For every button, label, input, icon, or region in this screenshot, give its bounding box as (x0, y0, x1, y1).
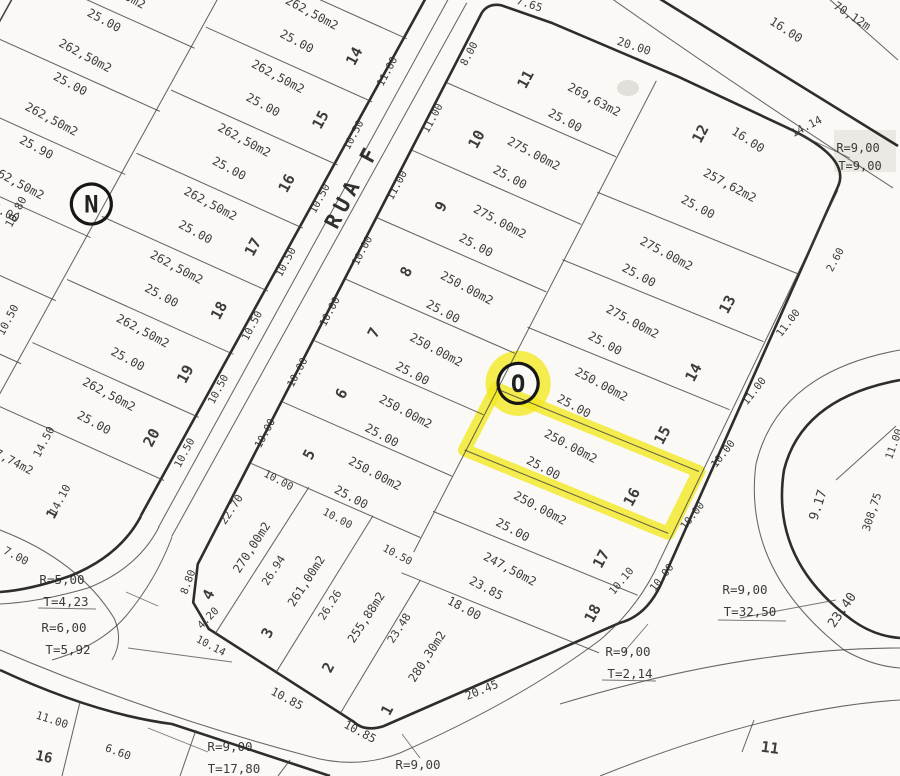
n15-d25: 25.00 (244, 90, 282, 119)
n14-d25: 25.00 (278, 27, 316, 56)
nb3-d25: 25.90 (17, 133, 55, 162)
n15-num: 15 (308, 108, 332, 132)
street-gutter-line (172, 0, 467, 541)
o11-d25: 25.00 (546, 106, 584, 135)
curve-t592: T=5,92 (45, 642, 90, 657)
o5-num: 5 (299, 446, 319, 462)
o11-num: 11 (513, 67, 537, 91)
plat-svg: 11269,63m225.008.007.6520.00275.00m225.0… (0, 0, 900, 776)
o1-num: 1 (377, 702, 397, 718)
curve-r9-s: R=9,00 (395, 757, 440, 772)
o6-num: 6 (331, 385, 351, 401)
e-dim-917: 9.17 (807, 488, 831, 522)
bl-dim-660: 6.60 (103, 741, 132, 762)
curve-r6: R=6,00 (41, 620, 86, 635)
nw-dim-1050: 10.50 (0, 302, 22, 337)
o9-num: 9 (431, 198, 451, 214)
lot-line (62, 702, 80, 776)
n19-d25: 25.00 (109, 344, 147, 373)
o7-num: 7 (364, 324, 384, 340)
o14-num: 14 (681, 360, 705, 384)
o4-top: 10.00 (262, 468, 296, 493)
o2-num: 2 (318, 659, 338, 675)
o14-area: 275.00m2 (604, 302, 662, 341)
n14-num: 14 (342, 44, 366, 68)
o12-area: 257,62m2 (701, 166, 759, 205)
n19-num: 19 (173, 362, 197, 386)
o3-top: 10.00 (321, 506, 355, 531)
o3-d2626: 26.26 (316, 588, 345, 623)
o8-num: 8 (396, 264, 416, 280)
tr-r9: R=9,00 (836, 141, 879, 155)
o-d1085b: 10.85 (342, 717, 379, 746)
o12-front: 2.60 (824, 246, 846, 274)
o17-d25: 25.00 (493, 515, 531, 544)
bl-dim-1100: 11.00 (34, 709, 70, 732)
n17-d25: 25.00 (176, 217, 214, 246)
o10-area: 275.00m2 (505, 134, 563, 173)
curve-r9-e: R=9,00 (722, 582, 767, 597)
e-area-30875: 308,75 (860, 491, 885, 533)
n20-num: 20 (139, 425, 163, 449)
o5-area: 250.00m2 (346, 454, 404, 493)
bl-lot-16: 16 (34, 748, 54, 767)
block-n-letter: N (84, 191, 98, 219)
o15-area: 250.00m2 (573, 365, 631, 404)
o18-d2385: 23.85 (467, 574, 505, 603)
tr-t9: T=9,00 (838, 159, 881, 173)
o12-num: 12 (688, 122, 712, 146)
curve-t178: T=17,80 (208, 761, 261, 776)
curve-r5: R=5,00 (39, 572, 84, 587)
o9-front: 11.00 (385, 169, 410, 203)
leader-line (402, 734, 420, 758)
bottom-right-street-line (600, 700, 900, 776)
lot-line (0, 215, 56, 311)
tr-dim-1600a: 16.00 (767, 14, 805, 45)
curve-t423: T=4,23 (43, 594, 88, 609)
lot-line (278, 760, 290, 776)
n17-area: 262,50m2 (182, 184, 240, 223)
o12-d25: 25.00 (679, 192, 717, 221)
scan-smudge (617, 80, 639, 96)
o-d2045: 20.45 (463, 677, 500, 703)
o8-front: 10.00 (350, 234, 375, 268)
o11-area: 269,63m2 (565, 80, 623, 119)
nb2-area: 262,50m2 (56, 36, 114, 75)
lot-line (0, 152, 91, 248)
o1-area: 280,30m2 (405, 629, 448, 685)
o2-d2348: 23.48 (385, 611, 414, 646)
o4-d2270: 22.70 (217, 492, 246, 527)
n15-area: 262,50m2 (249, 57, 307, 96)
o2-area: 255,88m2 (345, 589, 388, 645)
o18-front: 10.10 (607, 565, 637, 597)
o13-num: 13 (715, 292, 739, 316)
o15-num: 15 (650, 423, 674, 447)
n20-area: 262,50m2 (80, 375, 138, 414)
survey-tick (742, 720, 754, 752)
o4-area: 270,00m2 (230, 519, 273, 575)
o3-area: 261,00m2 (285, 553, 328, 609)
n18-num: 18 (207, 298, 231, 322)
nb4-area: 262,50m2 (0, 163, 46, 202)
o15-front: 10.00 (709, 438, 738, 470)
curve-r9-se: R=9,00 (605, 644, 650, 659)
nb1-d25: 25.00 (85, 6, 123, 35)
plat-map-scan: 11269,63m225.008.007.6520.00275.00m225.0… (0, 0, 900, 776)
n16-area: 262,50m2 (215, 120, 273, 159)
o10-front: 11.00 (420, 102, 445, 136)
o7-front: 10.00 (317, 295, 342, 329)
o18-num: 18 (581, 601, 605, 625)
lot-line (251, 451, 420, 550)
annotation-underline (718, 620, 786, 621)
o2-top: 10.50 (381, 542, 415, 567)
n14-front: 11.00 (375, 55, 400, 89)
o14-front: 11.00 (740, 375, 769, 407)
n18-front: 10.50 (240, 309, 265, 343)
br-lot-11: 11 (760, 738, 780, 758)
o12-cham: 14.14 (789, 113, 825, 140)
n17-num: 17 (241, 235, 265, 259)
o6-area: 250.00m2 (377, 392, 435, 431)
n20-d25: 25.00 (75, 408, 113, 437)
o16-num: 16 (620, 485, 644, 509)
o17-num: 17 (589, 547, 613, 571)
o3-num: 3 (257, 625, 277, 641)
block-o-letter: O (511, 370, 525, 398)
o10-num: 10 (464, 127, 488, 151)
o13-area: 275.00m2 (638, 234, 696, 273)
tr-dim-7012: 70,12m (831, 0, 874, 33)
o17-front: 10.00 (648, 562, 677, 594)
nw-dim-700: 7.00 (1, 544, 31, 568)
blocks-group: 11269,63m225.008.007.6520.00275.00m225.0… (0, 0, 900, 776)
o-d2000: 20.00 (615, 34, 652, 58)
o6-front: 10.00 (285, 356, 310, 390)
n16-num: 16 (275, 171, 299, 195)
n16-d25: 25.00 (210, 154, 248, 183)
o4-num: 4 (198, 587, 218, 603)
nb3-area: 262,50m2 (23, 99, 81, 138)
n17-front: 10.50 (273, 246, 298, 280)
lot-line (0, 89, 125, 185)
o7-area: 250.00m2 (407, 330, 465, 369)
nw-dim-1450: 14.50 (31, 424, 58, 459)
nb2-d25: 25.00 (51, 69, 89, 98)
curve-t214: T=2,14 (607, 666, 652, 681)
curve-r9-sw: R=9,00 (207, 739, 252, 754)
e-dim-1100: 11.00 (883, 427, 900, 461)
o8-area: 250.00m2 (438, 268, 496, 307)
tr-dim-1600b: 16.00 (729, 124, 767, 155)
o11-front: 8.00 (458, 40, 480, 68)
o5-front: 10.00 (253, 417, 278, 451)
curve-t3250: T=32,50 (724, 604, 777, 619)
n18-d25: 25.00 (142, 281, 180, 310)
lot-line (180, 730, 196, 776)
n18-area: 262,50m2 (148, 248, 206, 287)
e-dim-2340: 23.40 (825, 590, 860, 631)
n19-area: 262,50m2 (114, 311, 172, 350)
o9-area: 275.00m2 (471, 202, 529, 241)
nw-area-774: 7,74m2 (0, 446, 36, 478)
